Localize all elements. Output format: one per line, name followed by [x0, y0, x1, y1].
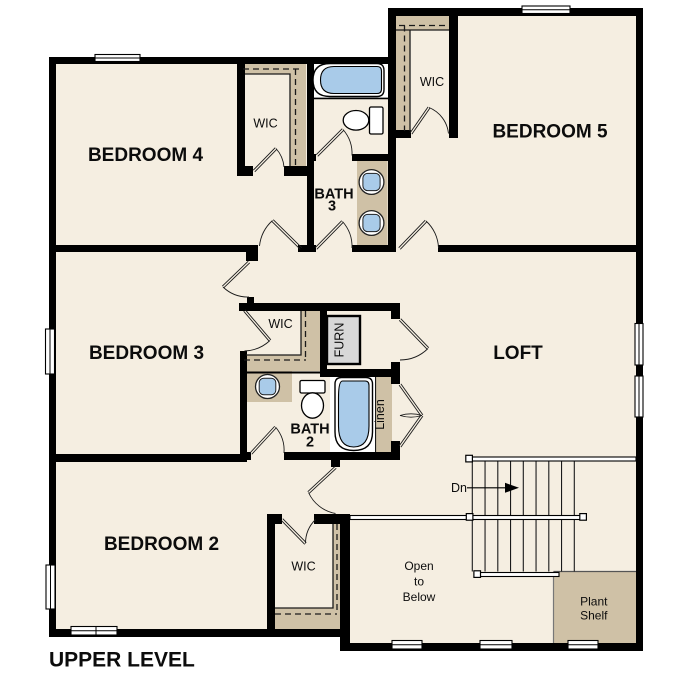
svg-text:BEDROOM 3: BEDROOM 3: [89, 343, 204, 364]
svg-text:Shelf: Shelf: [580, 608, 608, 622]
svg-text:LOFT: LOFT: [493, 343, 543, 364]
svg-text:3: 3: [328, 199, 336, 215]
svg-text:FURN: FURN: [333, 323, 347, 358]
svg-text:Plant: Plant: [580, 595, 608, 609]
svg-text:WIC: WIC: [291, 560, 315, 574]
svg-text:WIC: WIC: [420, 75, 444, 89]
svg-text:Open: Open: [404, 559, 433, 573]
svg-text:BEDROOM 4: BEDROOM 4: [88, 145, 204, 166]
svg-text:UPPER LEVEL: UPPER LEVEL: [49, 649, 195, 672]
svg-text:Linen: Linen: [373, 399, 387, 430]
svg-text:2: 2: [306, 435, 314, 451]
svg-text:Below: Below: [403, 590, 436, 604]
svg-text:WIC: WIC: [268, 317, 292, 331]
svg-text:Dn: Dn: [451, 481, 467, 495]
svg-text:BEDROOM 5: BEDROOM 5: [492, 122, 608, 143]
svg-text:BEDROOM 2: BEDROOM 2: [104, 534, 219, 555]
svg-text:to: to: [414, 574, 424, 588]
svg-text:WIC: WIC: [253, 117, 277, 131]
